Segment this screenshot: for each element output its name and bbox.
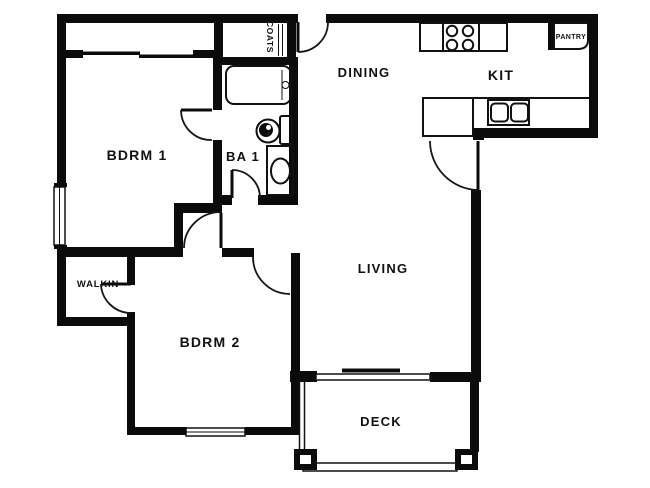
kitchen-living-door-swing	[430, 141, 478, 190]
wall-closet-right	[193, 50, 214, 58]
bdrm2-door-swing	[253, 257, 290, 294]
floor-plan-page: BDRM 1 BA 1 COATS DINING KIT PANTRY WALK…	[0, 0, 650, 488]
toilet	[257, 116, 293, 144]
wall-walkin-east-upper	[127, 252, 135, 285]
exterior-walls	[57, 14, 598, 452]
wall-kitchen-east	[589, 14, 598, 138]
wall-bdrm1-south	[57, 247, 183, 257]
room-label-bdrm1: BDRM 1	[107, 147, 168, 163]
entry-door-swing	[298, 22, 328, 52]
wall-walkin-east-lower	[127, 312, 135, 326]
wall-slider-right	[430, 372, 481, 382]
bdrm1-door-swing	[181, 110, 212, 140]
wall-hall-south	[222, 248, 254, 257]
room-label-dining: DINING	[338, 65, 391, 80]
ba1-door-swing	[232, 170, 260, 198]
wall-top-right	[326, 14, 598, 23]
room-label-ba1: BA 1	[226, 149, 260, 164]
wall-deck-east	[470, 382, 479, 452]
wall-top-left	[57, 14, 298, 23]
wall-kitchen-south	[484, 128, 598, 138]
wall-entry-hinge	[287, 22, 296, 62]
hall-door-swing	[184, 212, 221, 248]
room-label-kit: KIT	[488, 67, 514, 83]
wall-west-lower	[57, 245, 66, 326]
room-label-living: LIVING	[358, 261, 409, 276]
room-label-coats: COATS	[265, 21, 275, 53]
sliding-glass-door	[316, 369, 430, 381]
coats-closet-front	[279, 24, 283, 56]
room-label-pantry: PANTRY	[556, 34, 586, 41]
bdrm1-left-window	[54, 183, 67, 249]
room-label-walkin: WALKIN	[77, 279, 119, 290]
wall-bdrm2-west	[127, 326, 135, 435]
wall-bath-south	[258, 195, 298, 205]
bdrm2-bottom-window	[186, 428, 245, 436]
wall-bath-north	[214, 57, 298, 65]
wall-hall-west-lower	[213, 140, 222, 213]
room-label-bdrm2: BDRM 2	[180, 334, 241, 350]
wall-west-upper	[57, 14, 66, 188]
wall-connector-vert	[174, 207, 183, 257]
bathtub	[226, 66, 291, 104]
floor-plan: BDRM 1 BA 1 COATS DINING KIT PANTRY WALK…	[0, 0, 650, 488]
range-burners	[447, 26, 473, 50]
wall-passage-stub	[473, 128, 484, 140]
wall-bdrm2-south-left	[127, 427, 187, 435]
wall-coats-west	[214, 14, 223, 58]
wall-walkin-south	[57, 317, 135, 326]
room-label-deck: DECK	[360, 414, 402, 429]
wall-closet-left	[64, 50, 83, 58]
wall-bdrm2-east	[291, 253, 300, 435]
bdrm1-closet-sliding-doors	[83, 52, 195, 59]
wall-living-east	[471, 190, 481, 374]
kitchen-sink	[488, 100, 529, 125]
